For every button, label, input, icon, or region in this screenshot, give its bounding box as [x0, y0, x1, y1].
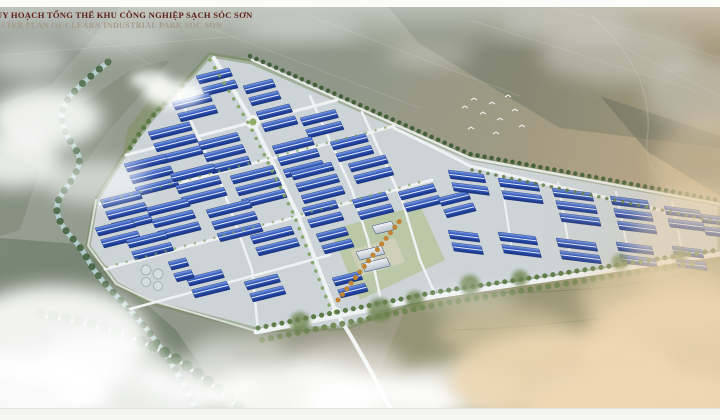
masterplan-rendering-page: QUY HOẠCH TỔNG THỂ KHU CÔNG NGHIỆP SẠCH …	[0, 0, 720, 420]
aerial-rendering-canvas	[0, 0, 720, 420]
plan-title-english: MASTER PLAN OF CLEARN INDUSTRIAL PARK SO…	[0, 21, 252, 30]
plan-title-vietnamese: QUY HOẠCH TỔNG THỂ KHU CÔNG NGHIỆP SẠCH …	[0, 10, 252, 20]
top-white-bar	[0, 0, 720, 7]
plan-title-block: QUY HOẠCH TỔNG THỂ KHU CÔNG NGHIỆP SẠCH …	[0, 10, 252, 30]
bottom-white-bar	[0, 408, 720, 420]
